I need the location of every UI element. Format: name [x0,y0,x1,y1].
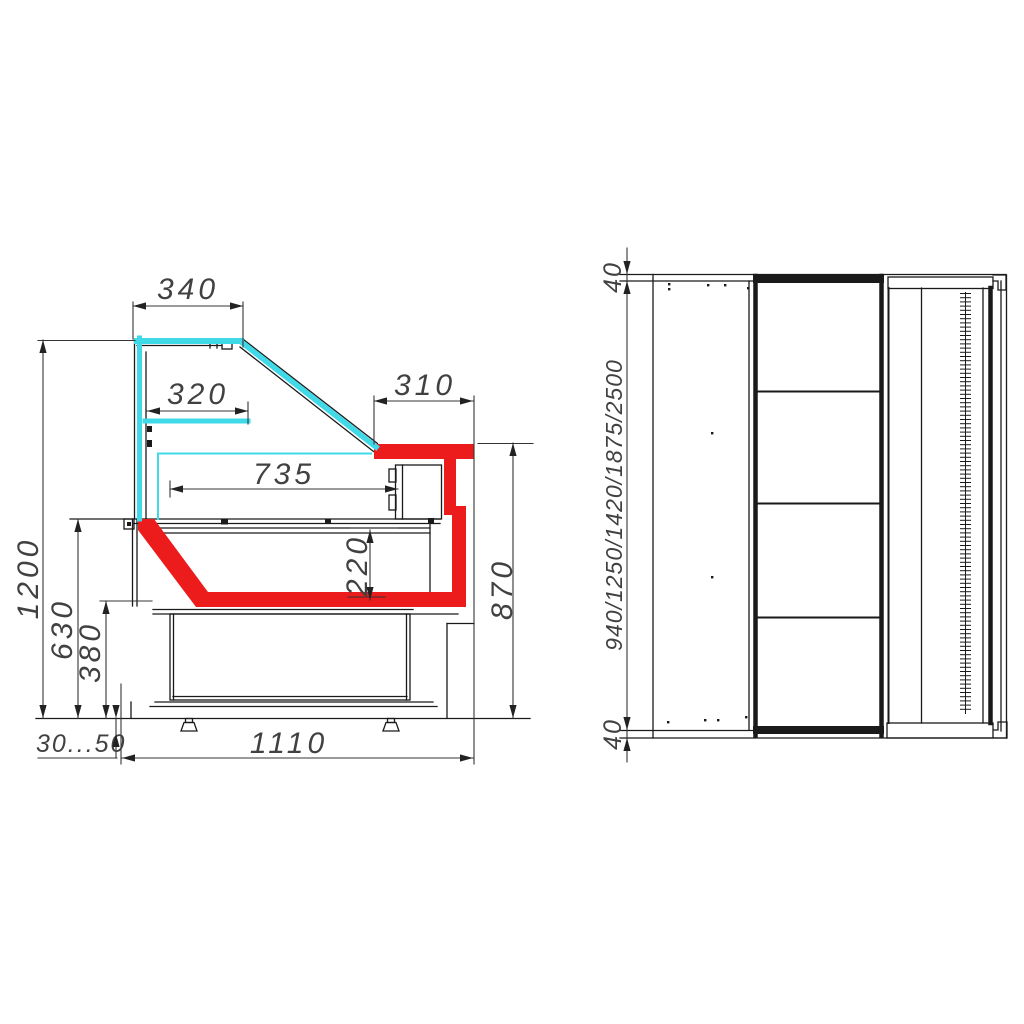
corner-bracket [993,275,1006,290]
dim-worktop-depth: 310 [394,369,456,402]
base-cabinet [170,614,410,700]
side-view: 340 320 310 735 1110 30...50 1200 630 38… [12,273,533,764]
dim-shelf-width: 320 [167,378,229,411]
dimension-arrow [374,397,387,404]
dimension-arrow [39,340,46,353]
dim-worktop-height: 870 [486,558,519,620]
dimension-arrow [74,519,81,532]
dimension-arrow [147,407,160,414]
plan-structure-outline [620,275,1007,739]
dimension-arrow [112,705,119,718]
plan-shelf-dividers [758,392,879,618]
plan-dimension-labels: 40 940/1250/1420/1875/2500 40 [599,261,627,750]
dimension-arrow [460,754,473,761]
plan-view: 40 940/1250/1420/1875/2500 40 [599,248,1007,762]
side-glass-panels [137,338,376,519]
dim-base-height: 380 [74,621,107,683]
dimension-arrow [133,302,146,309]
dim-feet-range: 30...50 [36,730,126,758]
dim-canopy-width: 340 [157,273,219,306]
dimension-arrows [39,261,630,762]
dim-inner-depth: 735 [253,458,315,491]
dim-lengths: 940/1250/1420/1875/2500 [601,359,627,651]
dimension-arrow [509,443,516,456]
dim-total-height: 1200 [12,537,45,620]
dimension-arrow [230,302,243,309]
dimension-arrow [102,601,109,614]
drawing-canvas: 340 320 310 735 1110 30...50 1200 630 38… [0,0,1024,1024]
dim-panel-top: 40 [599,261,627,293]
plan-perforated-strip [960,292,971,714]
dimension-arrow [102,705,109,718]
dimension-arrow [170,485,183,492]
dimension-arrow [509,705,516,718]
dim-panel-bottom: 40 [599,718,627,750]
adjustable-foot [181,719,197,732]
adjustable-foot [383,719,399,732]
front-sloped-glass [242,343,376,448]
dimension-arrow [74,705,81,718]
dim-base-length: 1110 [250,727,328,760]
dimension-arrow [39,705,46,718]
dimension-arrow [235,407,248,414]
technical-drawing: 340 320 310 735 1110 30...50 1200 630 38… [0,0,1024,1024]
plan-fastener-dots [667,283,749,723]
side-dimension-labels: 340 320 310 735 1110 30...50 1200 630 38… [12,273,519,760]
dimension-arrow [460,397,473,404]
